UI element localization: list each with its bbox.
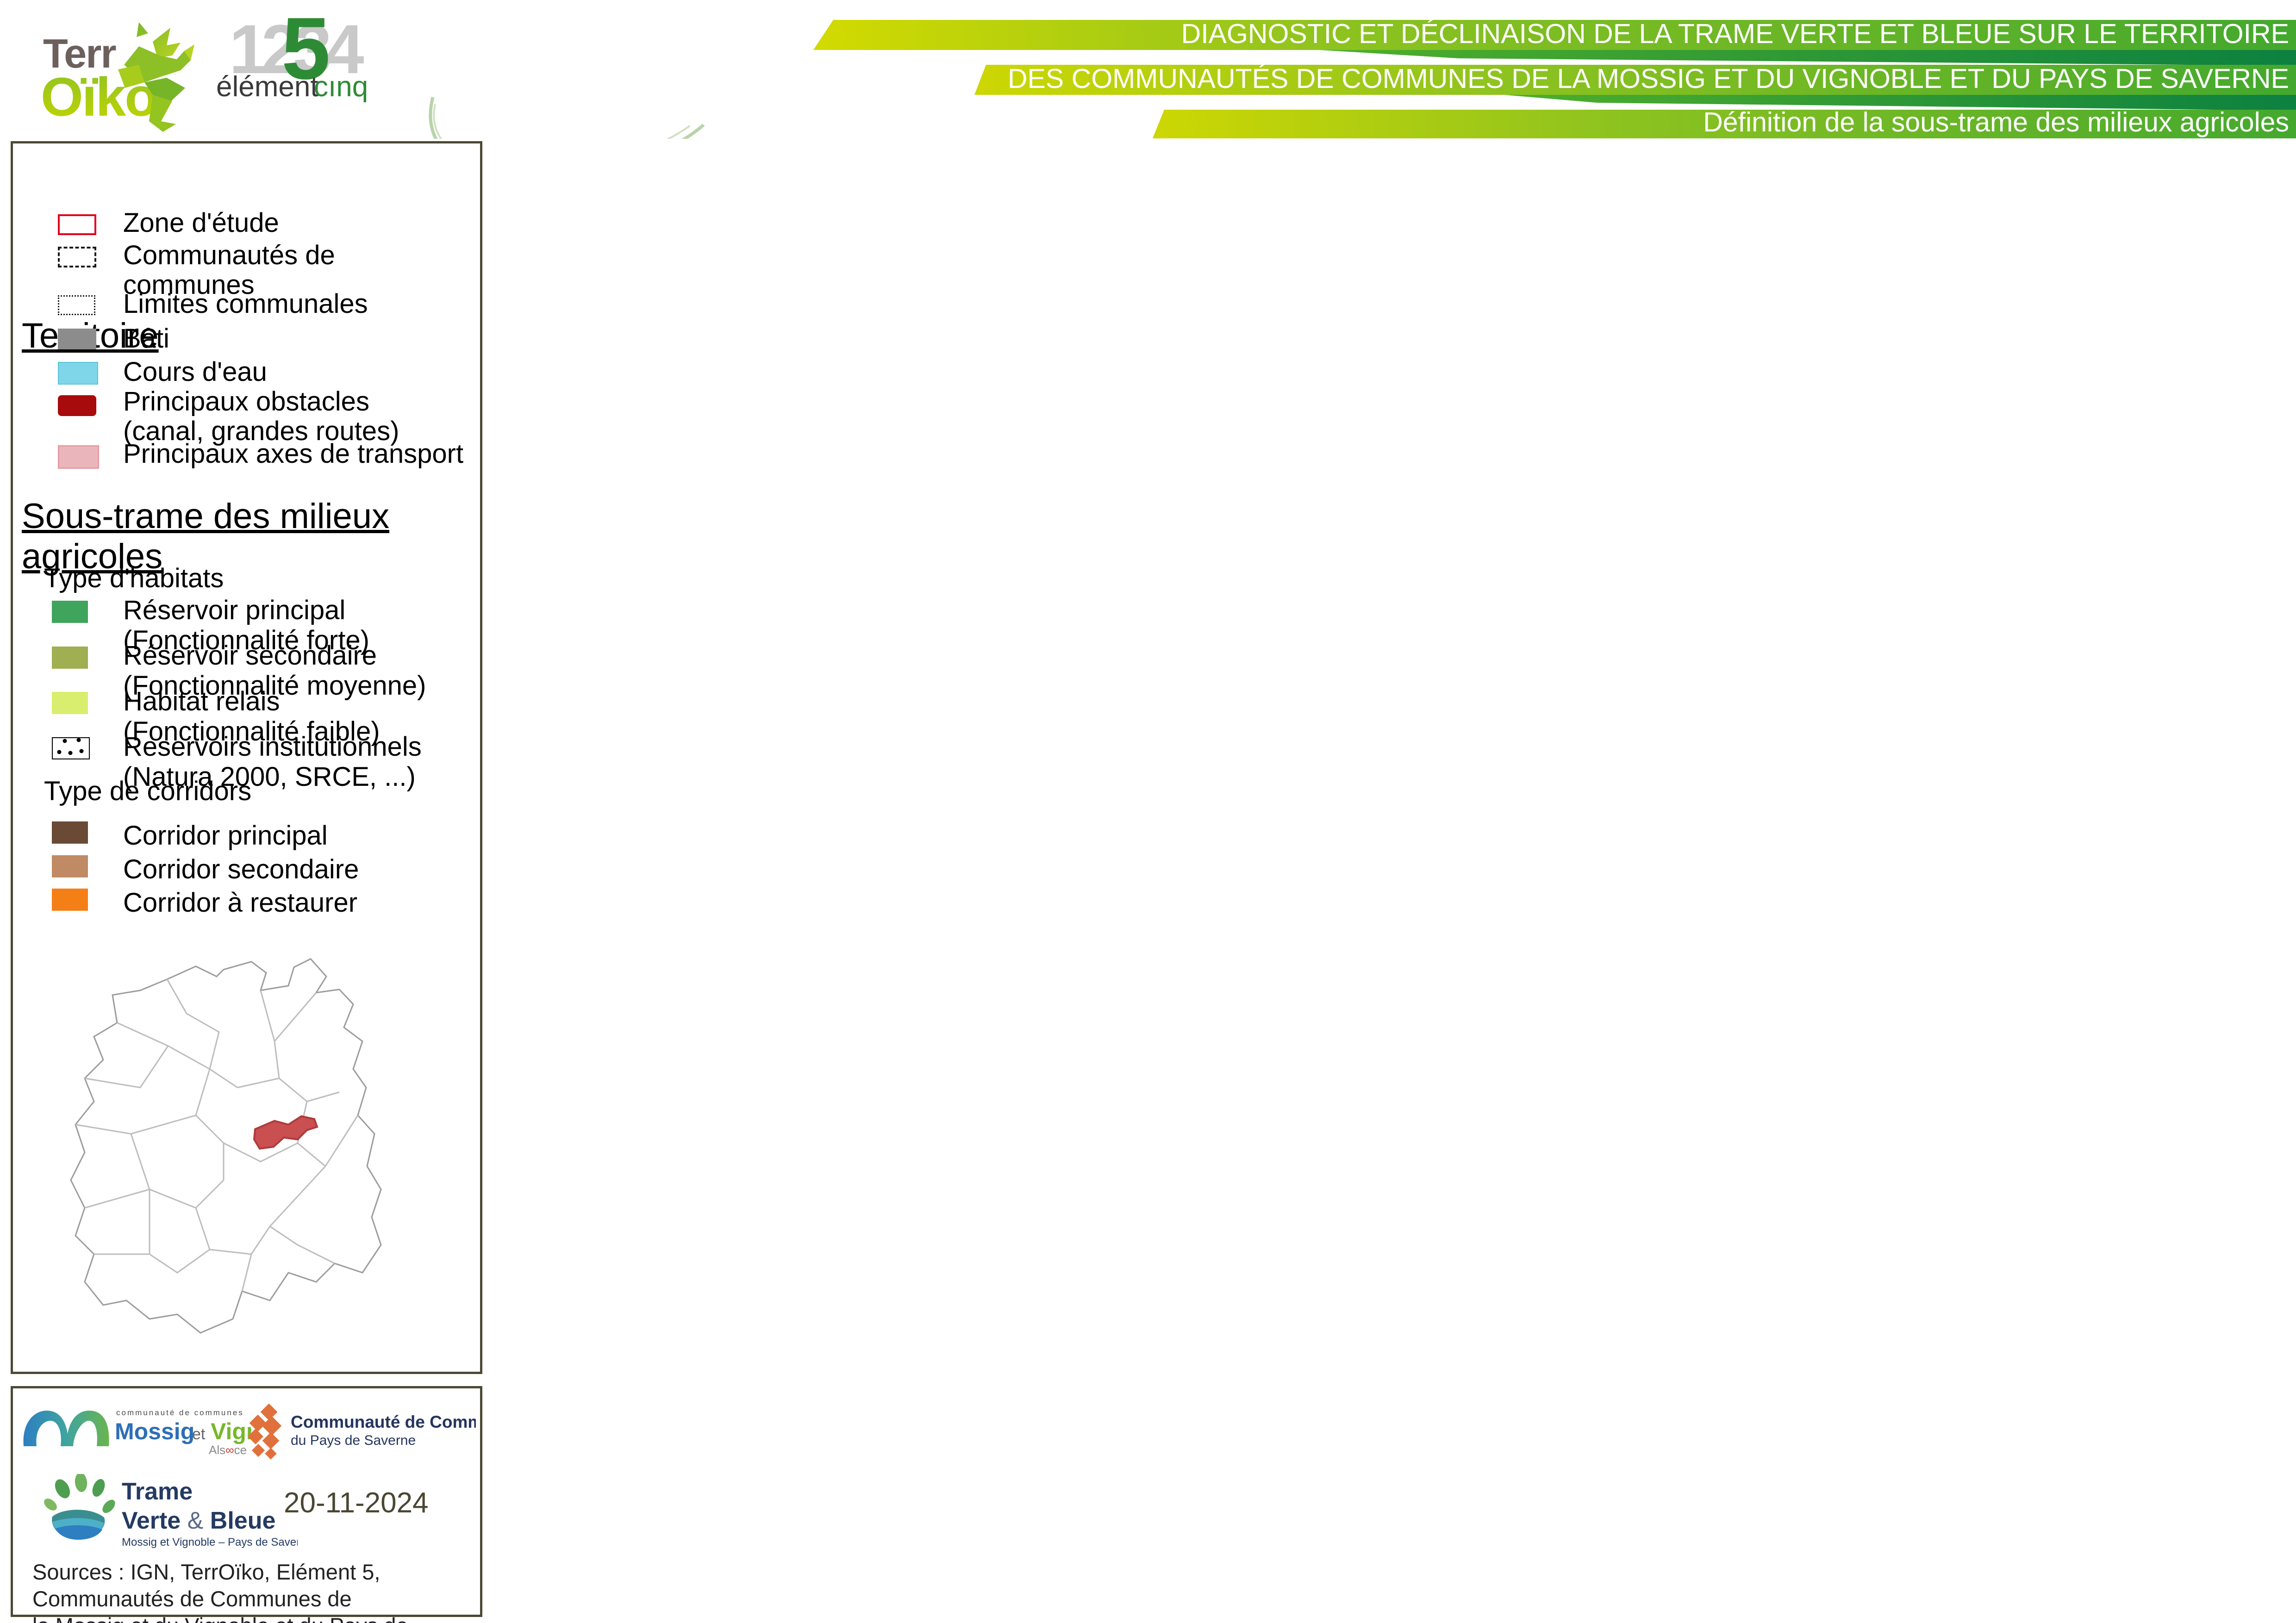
svg-text:DIAGNOSTIC ET DÉCLINAISON DE L: DIAGNOSTIC ET DÉCLINAISON DE LA TRAME VE… [1181, 19, 2289, 49]
svg-text:cınq: cınq [314, 71, 368, 103]
svg-text:Als∞ce: Als∞ce [209, 1443, 247, 1457]
svg-text:Mossig et Vignoble – Pays de S: Mossig et Vignoble – Pays de Saverne [122, 1536, 298, 1548]
svg-text:Définition de la sous-trame de: Définition de la sous-trame des milieux … [1703, 107, 2289, 137]
svg-text:DES COMMUNAUTÉS DE COMMUNES DE: DES COMMUNAUTÉS DE COMMUNES DE LA MOSSIG… [1008, 63, 2289, 94]
svg-text:Trame: Trame [122, 1478, 193, 1505]
svg-text:du Pays de Saverne: du Pays de Saverne [291, 1433, 416, 1448]
svg-text:et: et [192, 1425, 206, 1443]
svg-text:Communauté de Communes: Communauté de Communes [291, 1412, 476, 1431]
svg-text:Verte & Bleue: Verte & Bleue [122, 1507, 275, 1534]
svg-text:Mossig: Mossig [115, 1418, 194, 1444]
svg-text:élément: élément [216, 71, 318, 103]
svg-text:communauté de communes: communauté de communes [116, 1408, 244, 1417]
